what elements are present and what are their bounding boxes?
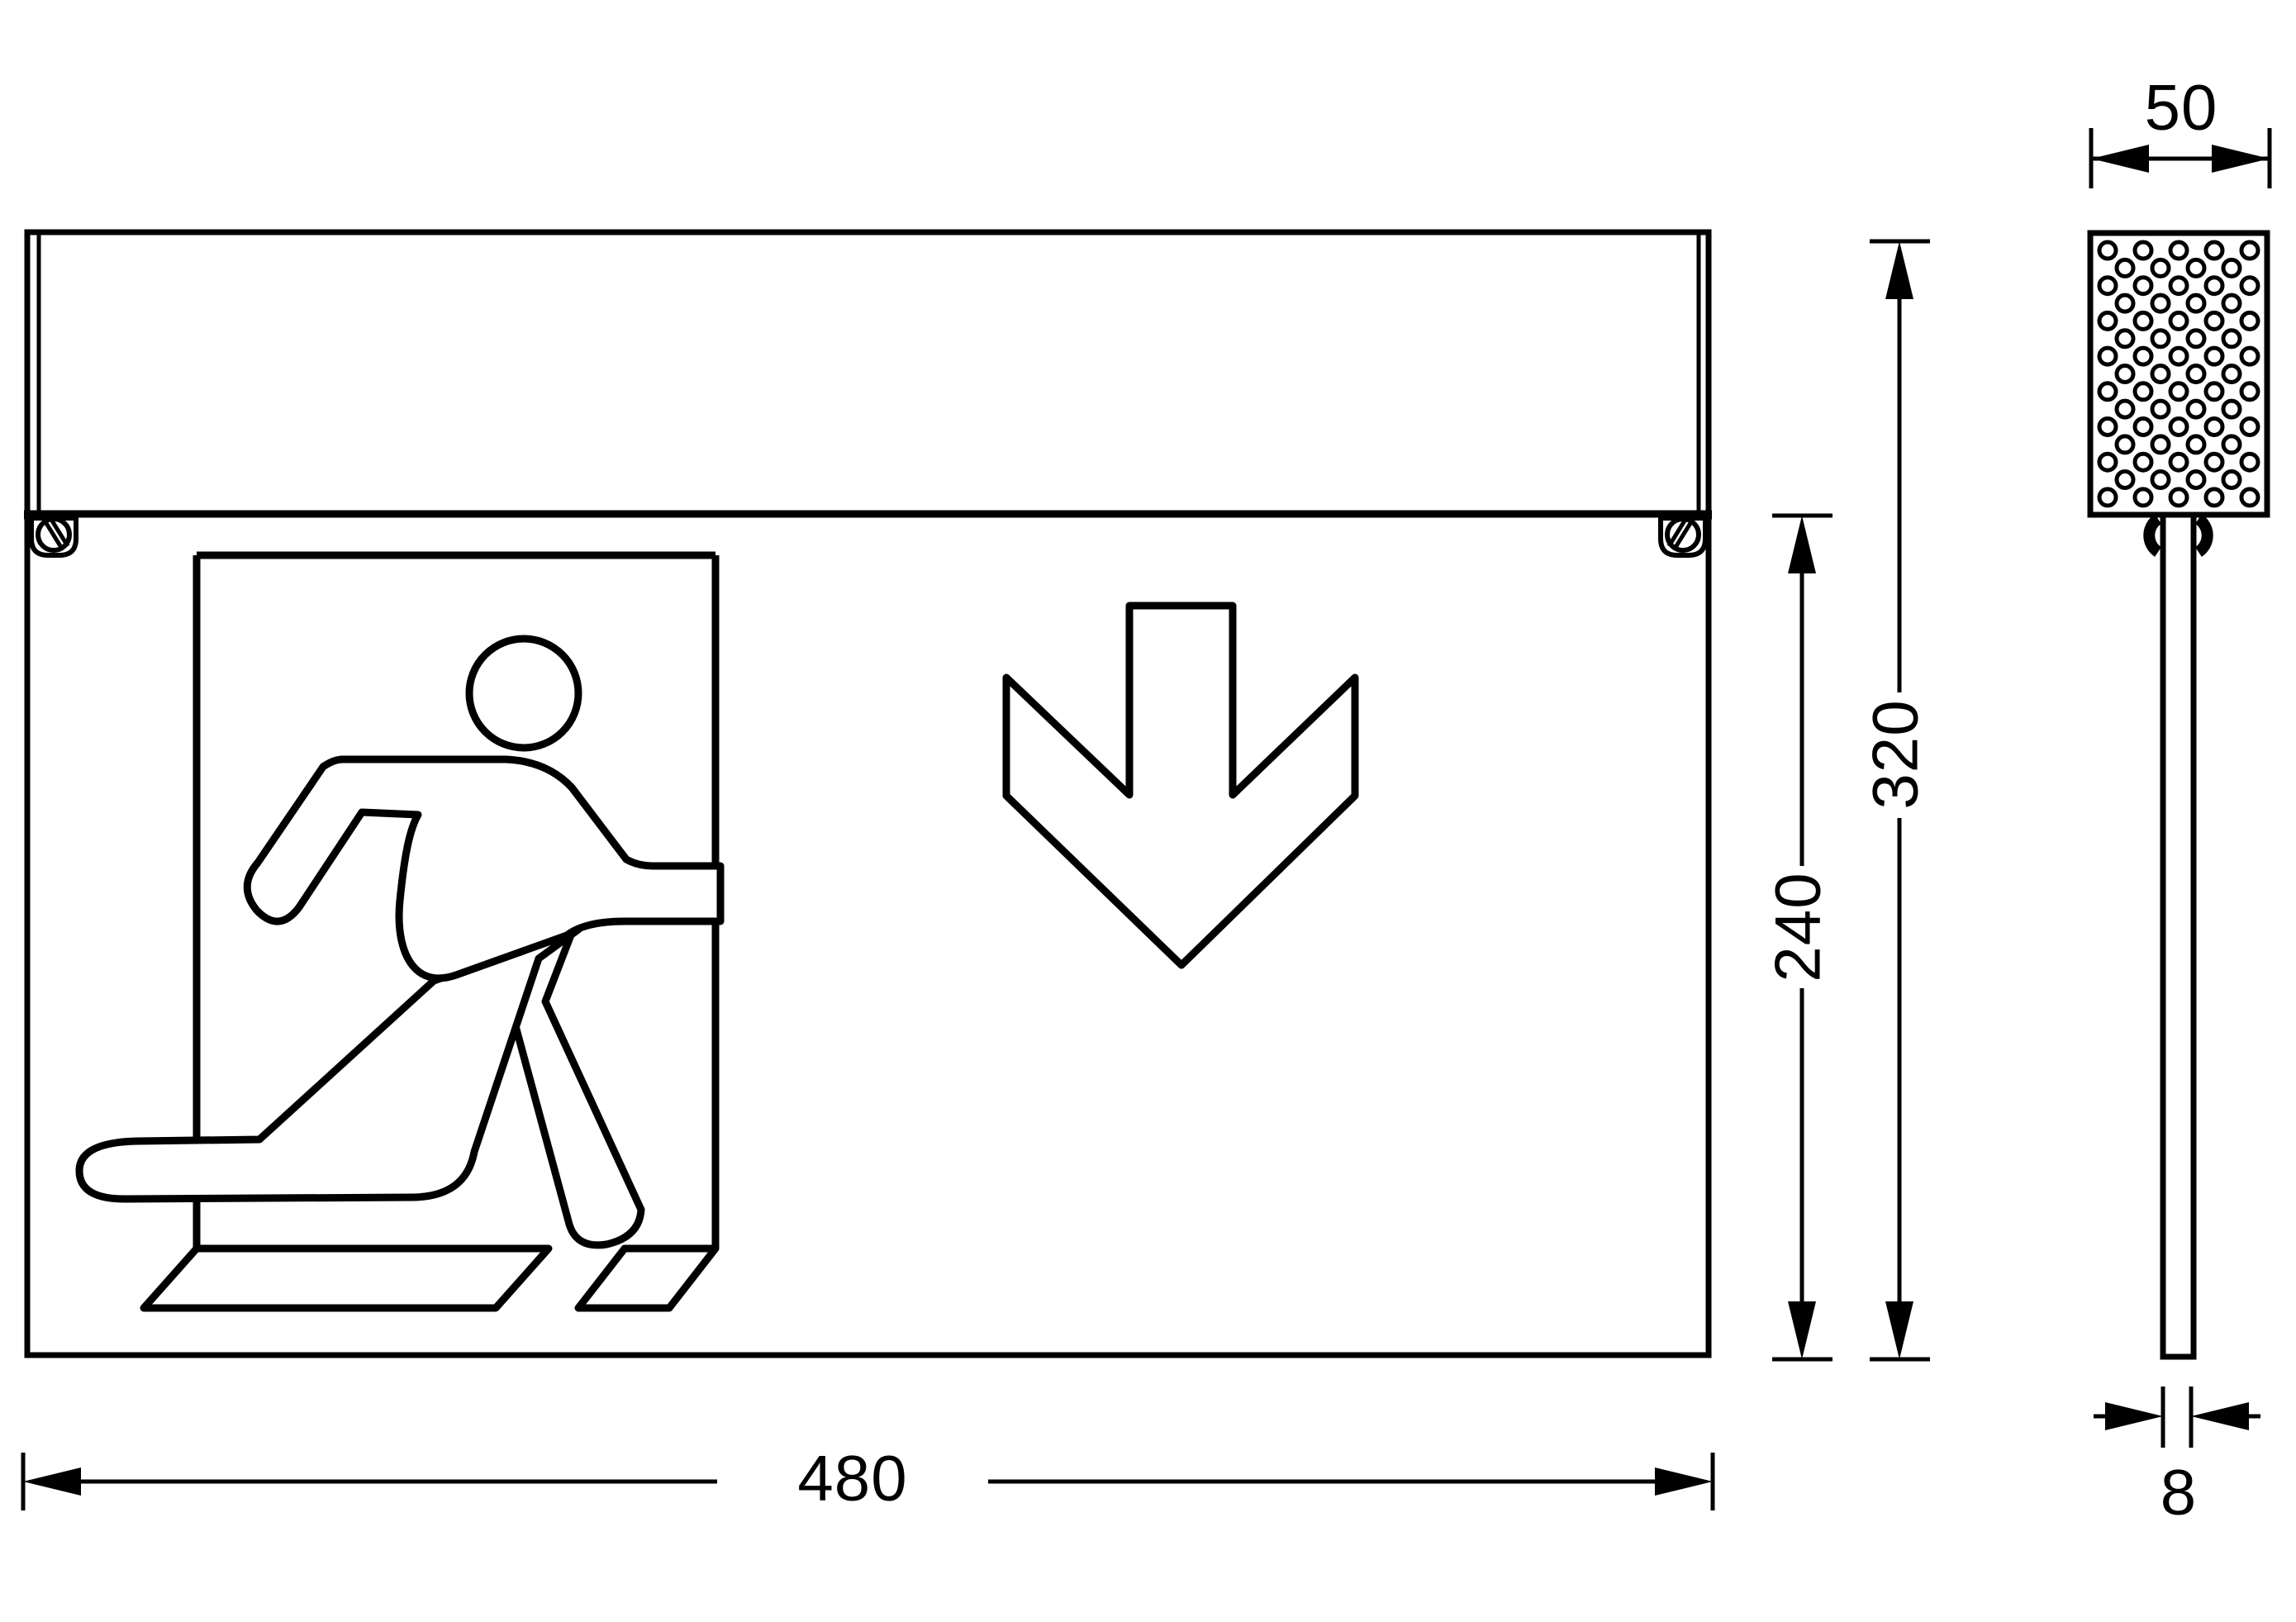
doorframe-base-left <box>144 1249 549 1308</box>
side-view <box>2090 233 2267 1357</box>
dim-8-lines <box>2094 1387 2260 1448</box>
housing <box>24 232 1712 515</box>
dim-label-total-height: 320 <box>1858 699 1933 809</box>
mounting-plate <box>2163 516 2194 1357</box>
dim-label-width: 480 <box>797 1441 907 1516</box>
dim-label-panel-thickness: 8 <box>2161 1455 2197 1530</box>
plate-clamp-right-icon <box>2199 519 2208 552</box>
technical-drawing-page: 480 320 240 50 8 <box>0 0 2296 1622</box>
plate-clamp-left-icon <box>2149 519 2158 552</box>
exit-sign-dimension-drawing <box>0 0 2296 1622</box>
screw-icon-right <box>1661 518 1705 555</box>
man-head <box>469 639 578 748</box>
dim-label-panel-height: 240 <box>1761 872 1836 982</box>
perforated-grille <box>2090 233 2267 515</box>
front-view <box>24 232 1712 1355</box>
dim-label-housing-depth: 50 <box>2145 70 2218 145</box>
screw-icon-left <box>31 518 76 555</box>
sign-panel <box>27 515 1709 1355</box>
